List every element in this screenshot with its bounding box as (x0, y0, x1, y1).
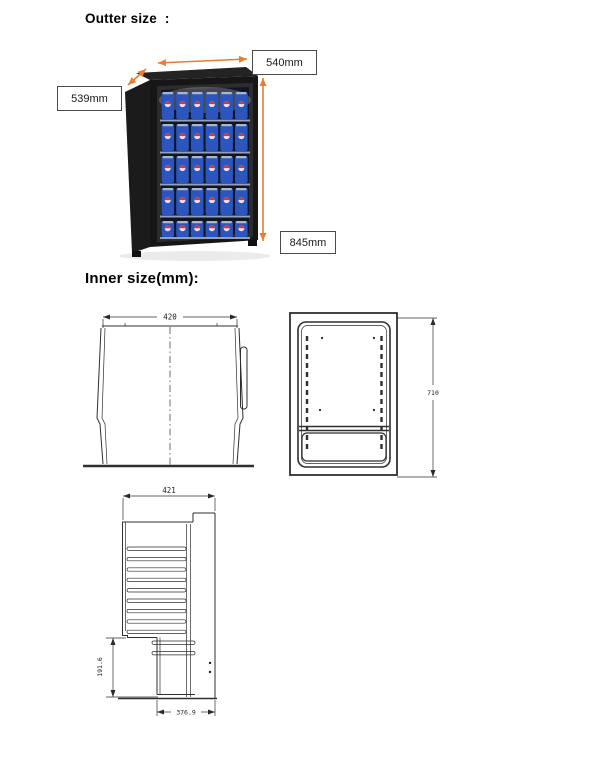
front-width-dim: 420 (163, 313, 177, 322)
floor-shadow (119, 251, 270, 261)
spec-sheet-page: Outter size : (0, 0, 603, 781)
recess-width-dim: 376.9 (176, 709, 196, 717)
outer-depth-label: 539mm (57, 86, 122, 111)
mount-holes (319, 337, 375, 411)
cabinet-foot-left (132, 251, 141, 257)
cooler-photo (105, 48, 270, 263)
step-height-dim: 191.6 (96, 657, 104, 677)
section-width-dim: 421 (162, 486, 176, 495)
section-holes (209, 662, 211, 673)
inner-size-drawings: 420 (80, 300, 460, 745)
outer-dimension-arrows (0, 0, 603, 270)
cavity-front-drawing: 710 (290, 313, 439, 477)
base-step (123, 631, 158, 638)
side-section-drawing: 421 (96, 486, 217, 717)
evaporator-ribs (127, 547, 195, 655)
outer-width-label: 540mm (252, 50, 317, 75)
cabinet-foot-right (248, 240, 257, 246)
outer-height-label: 845mm (280, 231, 336, 254)
cavity-height-dim: 710 (427, 389, 439, 397)
inner-size-title: Inner size(mm): (85, 270, 199, 287)
front-view-drawing: 420 (83, 313, 254, 467)
bottom-compartment (302, 433, 386, 461)
cabinet-side (125, 80, 150, 253)
outer-size-title: Outter size : (85, 11, 170, 26)
